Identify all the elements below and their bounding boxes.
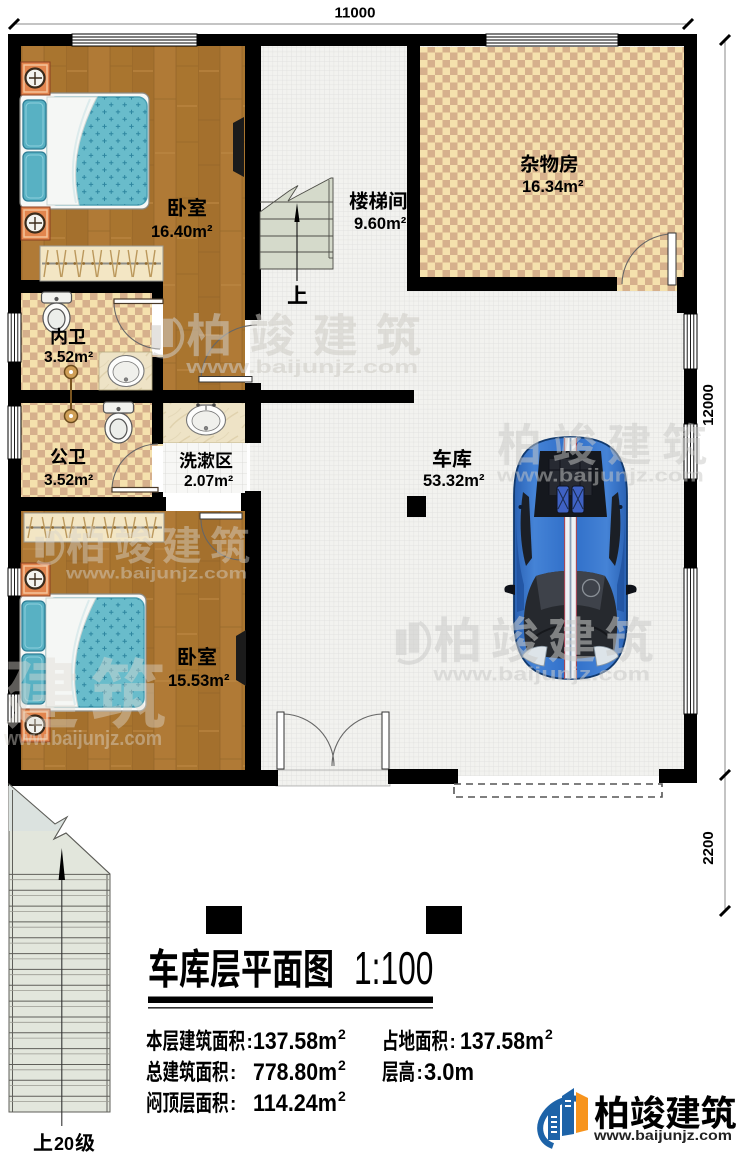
svg-text:11000: 11000 [335, 5, 376, 22]
svg-text:15.53m²: 15.53m² [168, 672, 230, 690]
svg-text:www.baijunjz.com: www.baijunjz.com [432, 664, 650, 686]
svg-text:16.40m²: 16.40m² [151, 223, 213, 241]
svg-text:2: 2 [338, 1057, 346, 1073]
svg-text::: : [247, 1032, 253, 1053]
svg-text:137.58m: 137.58m [460, 1028, 544, 1055]
svg-text:www.baijunjz.com: www.baijunjz.com [3, 728, 162, 750]
svg-text:www.baijunjz.com: www.baijunjz.com [65, 565, 248, 582]
svg-text:20: 20 [54, 1134, 74, 1154]
svg-text:778.80m: 778.80m [253, 1059, 337, 1086]
svg-text:2.07m²: 2.07m² [184, 473, 233, 490]
svg-text:3.0m: 3.0m [424, 1059, 474, 1086]
svg-text:3.52m²: 3.52m² [44, 349, 93, 366]
svg-text:www.baijunjz.com: www.baijunjz.com [185, 356, 418, 377]
svg-text:9.60m²: 9.60m² [354, 215, 407, 233]
svg-text:12000: 12000 [700, 384, 717, 426]
svg-text:www.baijunjz.com: www.baijunjz.com [593, 1128, 732, 1143]
svg-text:2: 2 [545, 1026, 553, 1042]
svg-text::: : [417, 1063, 423, 1084]
svg-text:2200: 2200 [700, 831, 717, 864]
svg-text::: : [230, 1063, 236, 1084]
svg-text::: : [450, 1032, 456, 1053]
svg-text:53.32m²: 53.32m² [423, 472, 485, 490]
svg-text:114.24m: 114.24m [253, 1090, 337, 1117]
svg-text:www.baijunjz.com: www.baijunjz.com [496, 466, 704, 486]
svg-text::: : [230, 1094, 236, 1115]
svg-text:2: 2 [338, 1088, 346, 1104]
svg-text:3.52m²: 3.52m² [44, 472, 93, 489]
svg-text:137.58m: 137.58m [253, 1028, 337, 1055]
svg-text:16.34m²: 16.34m² [522, 178, 584, 196]
svg-text:1:100: 1:100 [354, 943, 433, 994]
svg-text:2: 2 [338, 1026, 346, 1042]
